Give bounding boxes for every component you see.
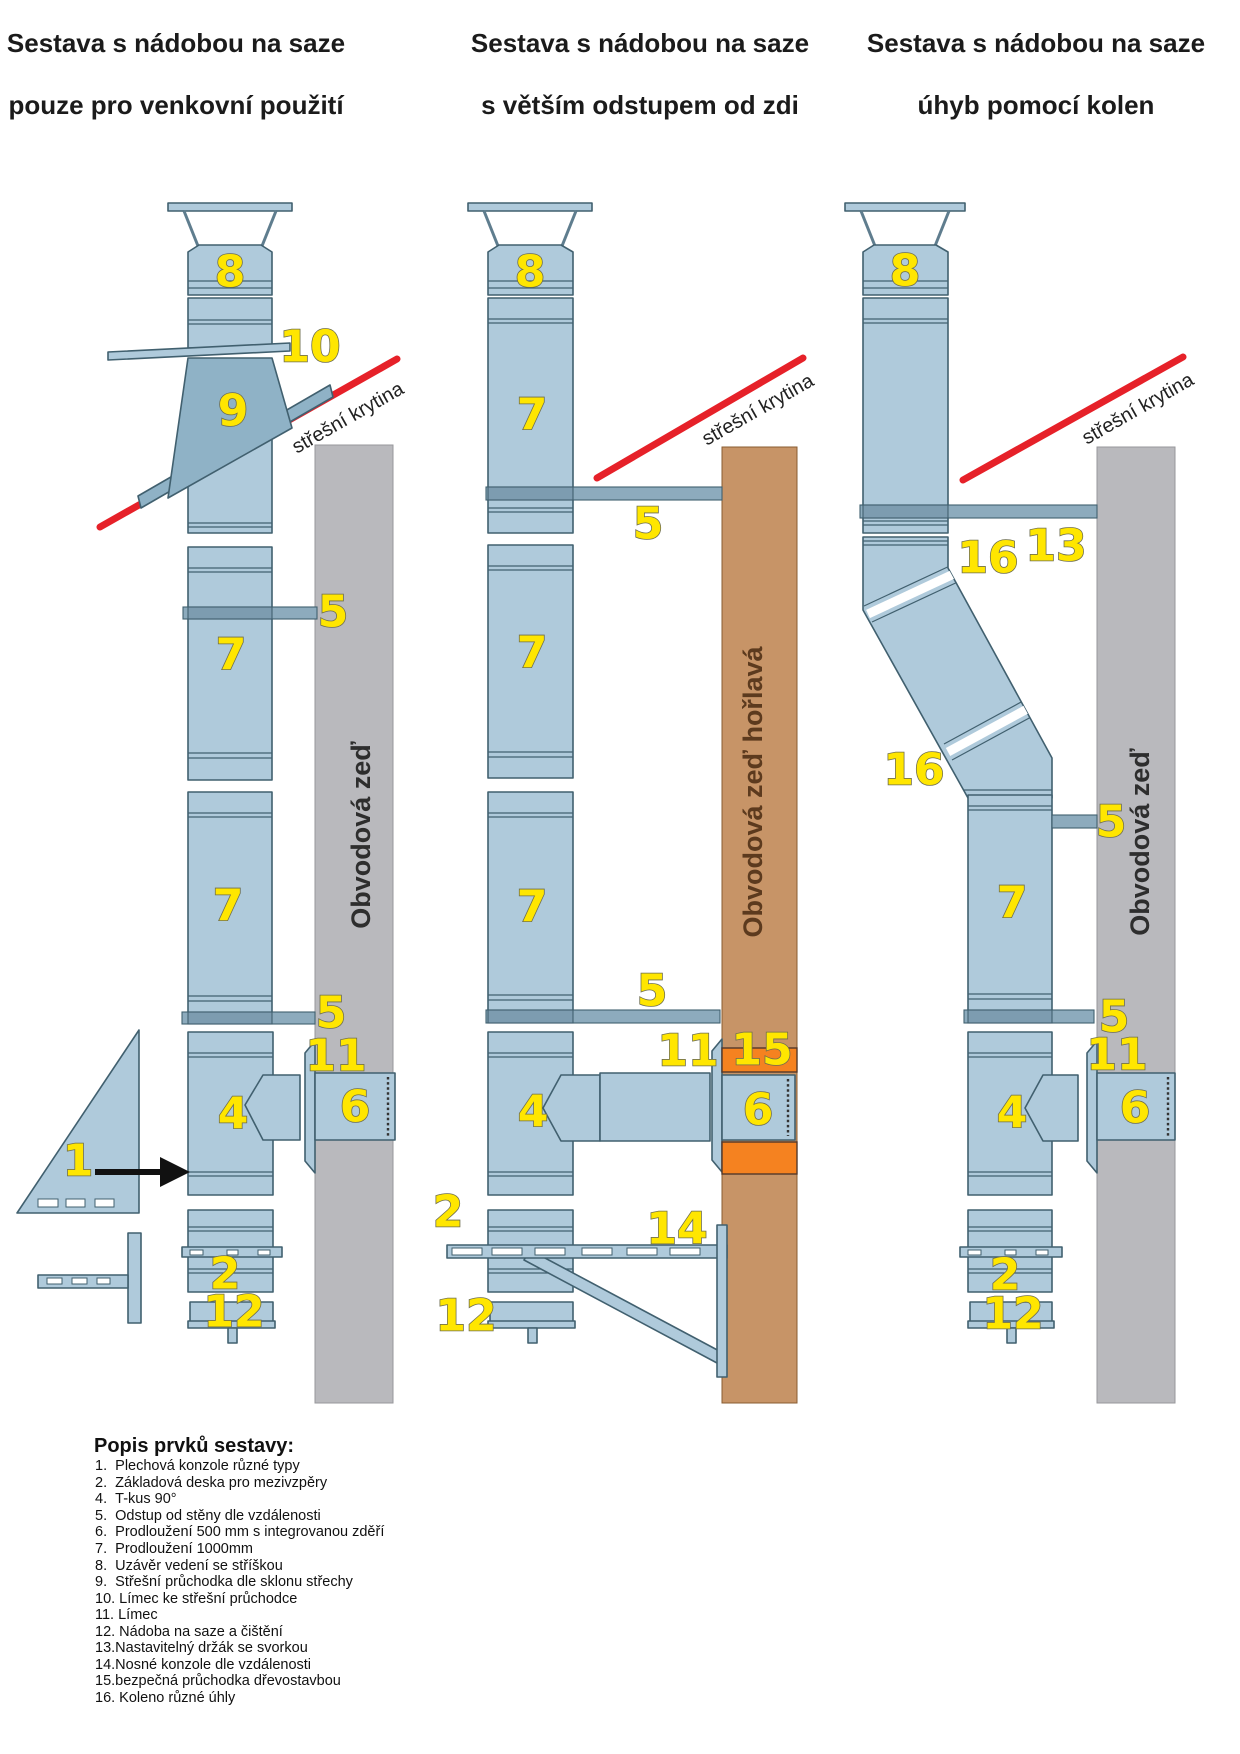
title-right-line1: Sestava s nádobou na saze (867, 28, 1205, 58)
title-right-line2: úhyb pomocí kolen (918, 90, 1155, 120)
legend-heading: Popis prvků sestavy: (94, 1435, 294, 1457)
part-label-8: 8 (515, 247, 546, 298)
legend-item: 10. Límec ke střešní průchodce (95, 1591, 297, 1607)
part-label-9: 9 (218, 386, 249, 437)
legend-item: 16. Koleno různé úhly (95, 1690, 236, 1706)
wall-spacer-bracket (486, 487, 722, 500)
cap-plate (468, 203, 592, 211)
part-label-15: 15 (731, 1025, 792, 1076)
part-label-4: 4 (518, 1087, 549, 1138)
part-label-16: 16 (883, 745, 944, 796)
cap-plate (845, 203, 965, 211)
perimeter-wall-label: Obvodová zeď (1125, 748, 1155, 936)
part-label-5: 5 (637, 966, 668, 1017)
part-label-12: 12 (435, 1291, 496, 1342)
legend-item: 4. T-kus 90° (95, 1491, 177, 1507)
part-label-14: 14 (646, 1204, 707, 1255)
console-wall-plate (717, 1225, 727, 1377)
part-label-11: 11 (1086, 1030, 1147, 1081)
chimney-assembly-diagram: Sestava s nádobou na saze pouze pro venk… (0, 0, 1240, 1754)
part-label-2: 2 (433, 1187, 464, 1238)
legend-item: 8. Uzávěr vedení se stříškou (95, 1558, 283, 1574)
legend-item: 13.Nastavitelný držák se svorkou (95, 1640, 308, 1656)
wall-spacer-bracket (1052, 815, 1097, 828)
wall-spacer-bracket (486, 1010, 720, 1023)
wall-spacer-bracket (183, 607, 317, 619)
part-label-8: 8 (890, 246, 921, 297)
part-label-7: 7 (517, 882, 548, 933)
legend-item: 7. Prodloužení 1000mm (95, 1541, 253, 1557)
part-label-6: 6 (743, 1085, 774, 1136)
part-label-7: 7 (216, 630, 247, 681)
legend-item: 6. Prodloužení 500 mm s integrovanou zdě… (95, 1524, 384, 1540)
cap-plate (168, 203, 292, 211)
part-label-7: 7 (997, 878, 1028, 929)
soot-container (488, 1302, 575, 1343)
legend: Popis prvků sestavy: 1. Plechová konzole… (94, 1435, 384, 1706)
part-label-10: 10 (279, 322, 340, 373)
title-middle-line2: s větším odstupem od zdi (481, 90, 799, 120)
part-label-1: 1 (63, 1136, 94, 1187)
perimeter-wall-label: Obvodová zeď (346, 741, 376, 929)
part-label-4: 4 (218, 1089, 249, 1140)
l-bracket (38, 1233, 141, 1323)
part-label-5: 5 (1096, 797, 1127, 848)
part-label-5: 5 (318, 587, 349, 638)
title-left-line2: pouze pro venkovní použití (8, 90, 344, 120)
part-label-6: 6 (340, 1082, 371, 1133)
safe-feedthrough-bottom (722, 1142, 797, 1174)
part-label-4: 4 (997, 1088, 1028, 1139)
wall-spacer-bracket (182, 1012, 315, 1024)
part-label-7: 7 (213, 881, 244, 932)
perimeter-wall-flammable-label: Obvodová zeď hořlavá (738, 646, 768, 938)
part-label-12: 12 (982, 1289, 1043, 1340)
legend-item: 15.bezpečná průchodka dřevostavbou (95, 1673, 341, 1689)
extension-1000mm (863, 298, 948, 533)
part-label-13: 13 (1025, 521, 1086, 572)
part-label-7: 7 (517, 628, 548, 679)
wall-spacer-bracket (964, 1010, 1094, 1023)
assembly-outdoor-only: Obvodová zeď střešní krytina (17, 203, 408, 1403)
title-left-line1: Sestava s nádobou na saze (7, 28, 345, 58)
legend-item: 9. Střešní průchodka dle sklonu střechy (95, 1574, 354, 1590)
horizontal-pipe (600, 1073, 710, 1141)
part-label-6: 6 (1120, 1083, 1151, 1134)
legend-item: 14.Nosné konzole dle vzdálenosti (95, 1657, 311, 1673)
legend-item: 2. Základová deska pro mezivzpěry (95, 1475, 328, 1491)
legend-item: 12. Nádoba na saze a čištění (95, 1624, 283, 1640)
part-label-11: 11 (305, 1031, 366, 1082)
part-label-16: 16 (957, 533, 1018, 584)
title-middle-line1: Sestava s nádobou na saze (471, 28, 809, 58)
part-label-7: 7 (517, 390, 548, 441)
part-label-11: 11 (657, 1026, 718, 1077)
part-label-8: 8 (215, 247, 246, 298)
assembly-elbow-bypass: Obvodová zeď střešní krytina (845, 203, 1198, 1403)
legend-item: 1. Plechová konzole různé typy (95, 1458, 300, 1474)
part-label-12: 12 (203, 1287, 264, 1338)
legend-item: 5. Odstup od stěny dle vzdálenosti (95, 1508, 321, 1524)
legend-item: 11. Límec (95, 1607, 158, 1623)
part-label-5: 5 (633, 499, 664, 550)
assembly-offset-from-wall: Obvodová zeď hořlavá střešní krytina (433, 203, 819, 1403)
adjustable-holder-bracket (860, 505, 1097, 518)
titles: Sestava s nádobou na saze pouze pro venk… (7, 28, 1205, 120)
